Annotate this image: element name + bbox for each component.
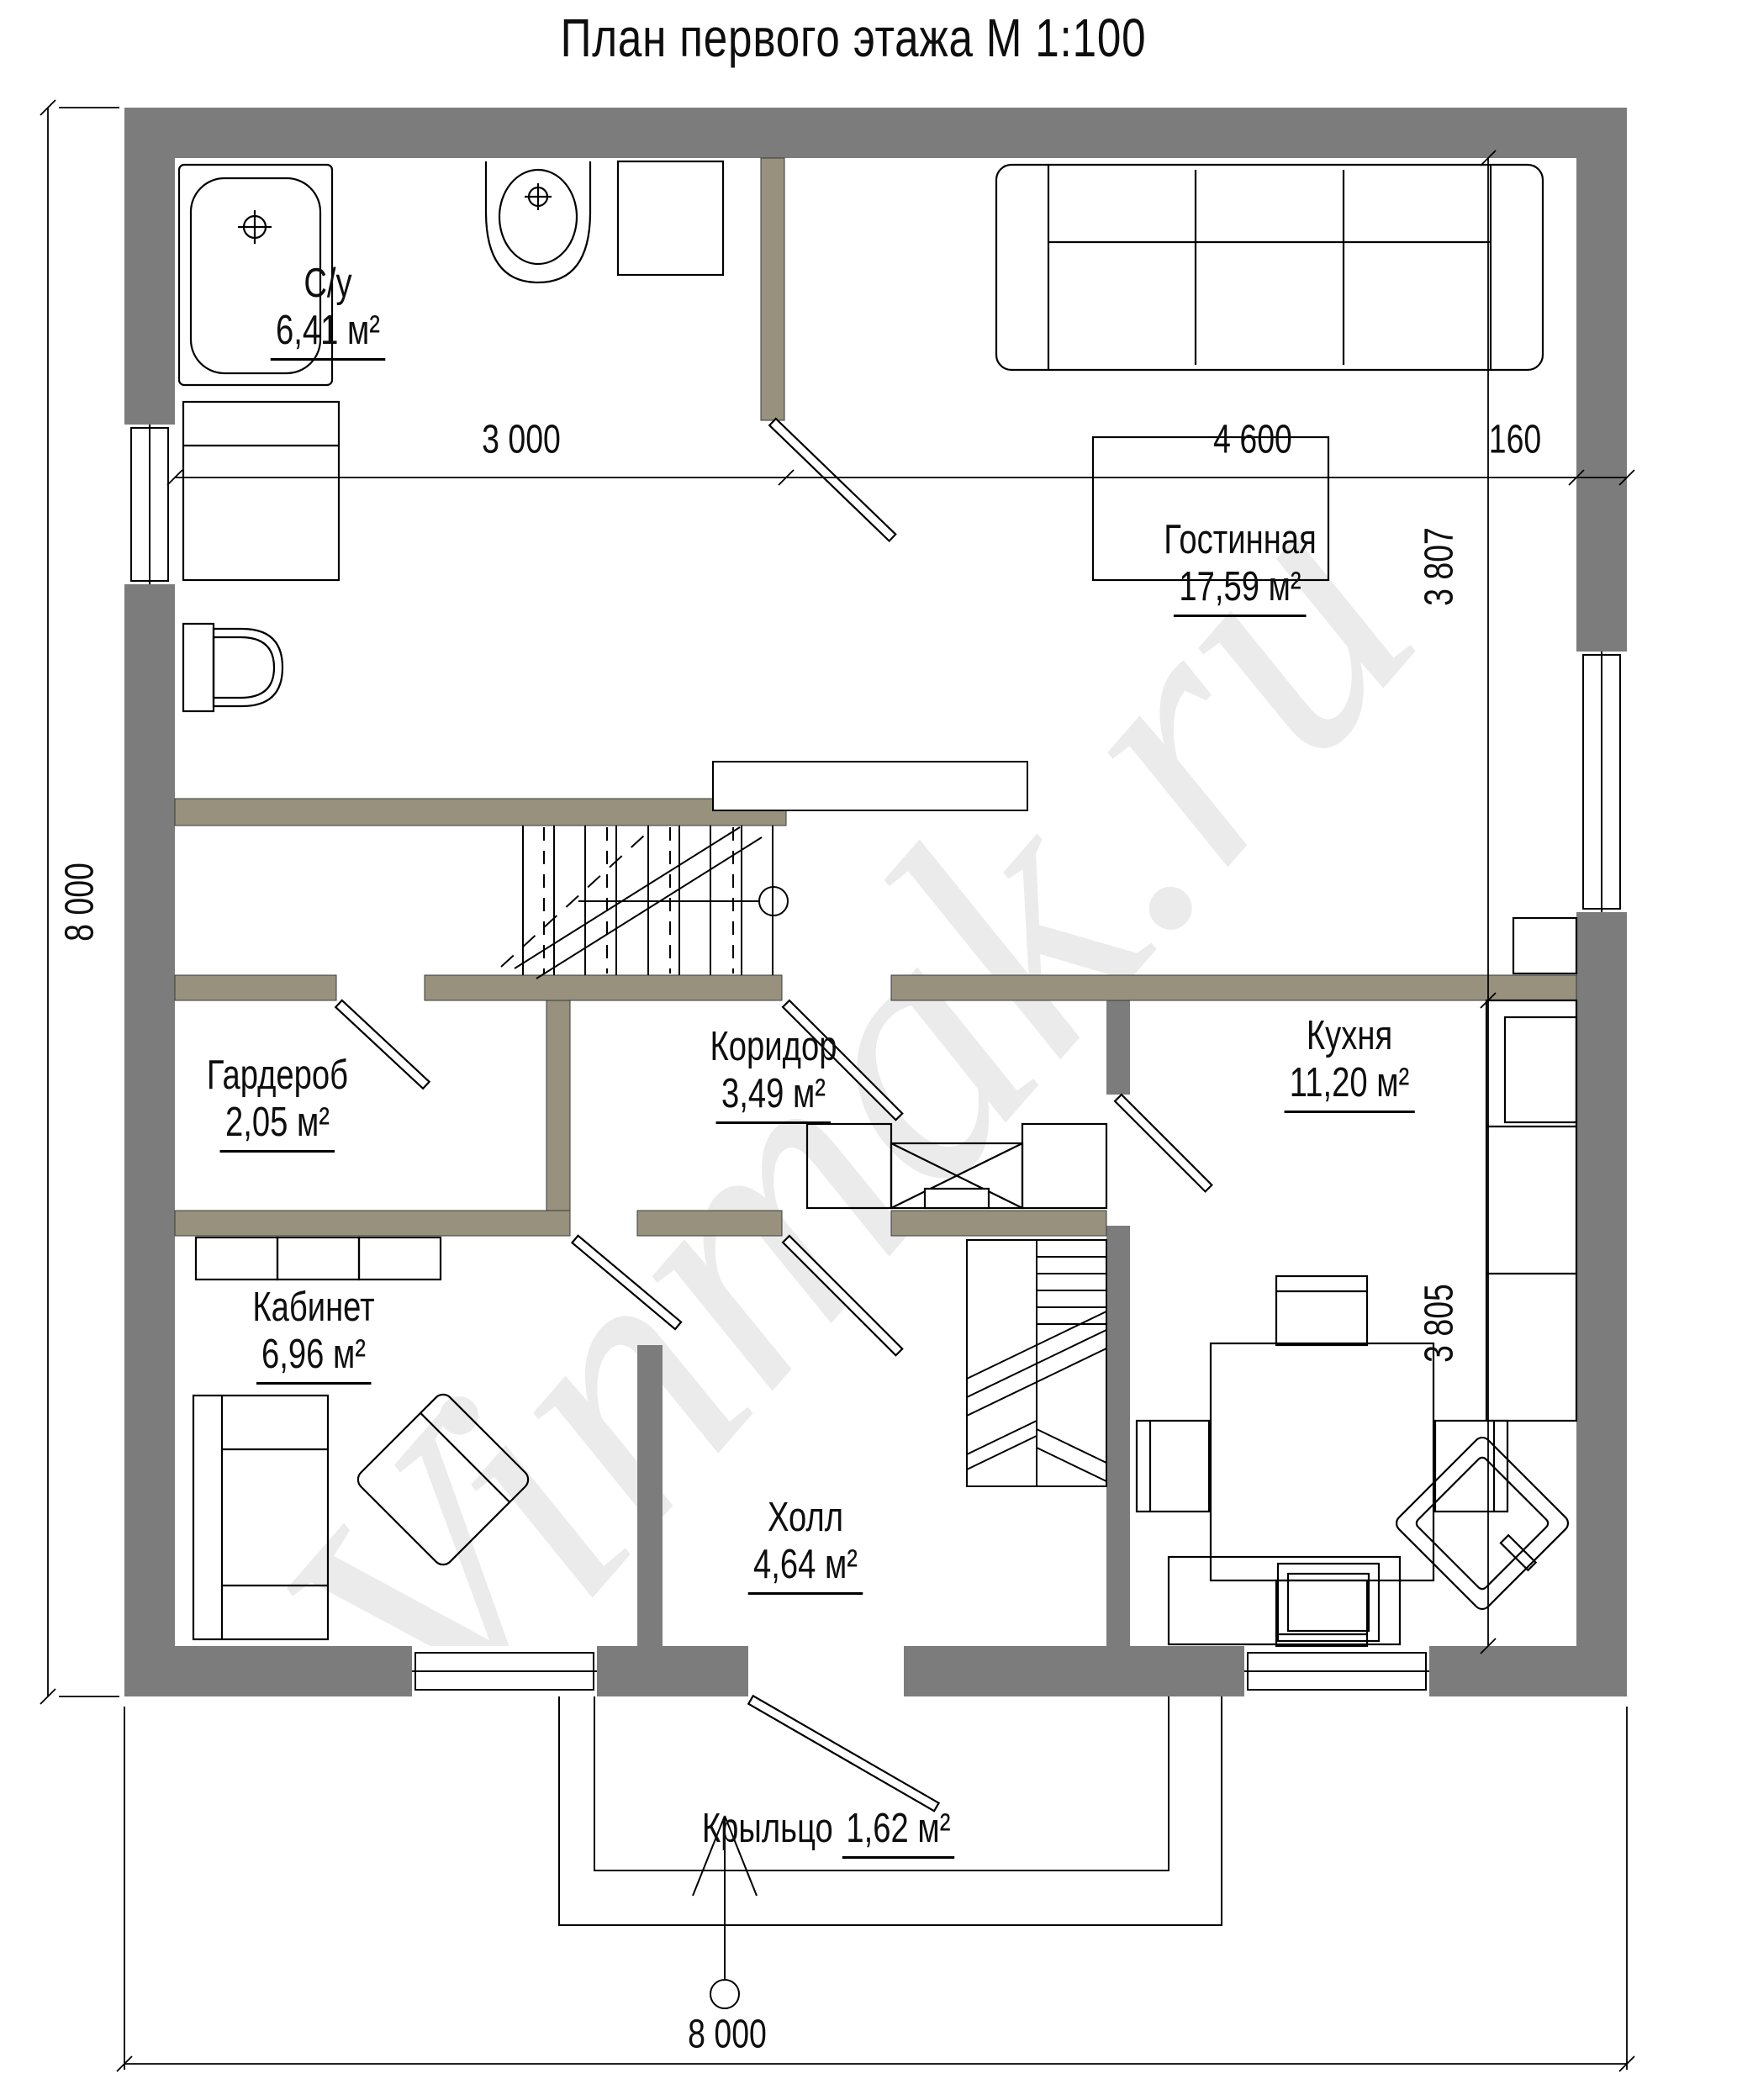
wall-low-1 bbox=[175, 1211, 570, 1236]
room-area: 6,41 м² bbox=[271, 307, 386, 361]
room-label-garderob: Гардероб 2,05 м² bbox=[207, 1053, 348, 1153]
wall-top bbox=[124, 108, 1627, 158]
washing-machine bbox=[183, 402, 339, 580]
room-label-living: Гостинная 17,59 м² bbox=[1164, 517, 1317, 617]
chair-bottom bbox=[1276, 1580, 1367, 1646]
dining-table bbox=[1211, 1343, 1433, 1580]
room-area: 1,62 м² bbox=[842, 1804, 954, 1859]
wall-low-2 bbox=[637, 1211, 782, 1236]
wall-garderob-east bbox=[546, 1000, 570, 1211]
page-title: План первого этажа М 1:100 bbox=[561, 7, 1147, 69]
wall-office-hall bbox=[637, 1345, 663, 1646]
room-name: Холл bbox=[748, 1495, 863, 1541]
room-label-hall: Холл 4,64 м² bbox=[748, 1495, 863, 1595]
stairs bbox=[501, 762, 1027, 979]
dim-bottom-total: 8 000 bbox=[688, 2012, 767, 2058]
living-room-furniture bbox=[807, 165, 1576, 1208]
wall-bottom-3 bbox=[904, 1646, 1244, 1696]
dim-top-160: 160 bbox=[1489, 417, 1541, 463]
room-label-bathroom: С/у 6,41 м² bbox=[271, 261, 386, 361]
window-right bbox=[1576, 652, 1627, 912]
room-name: Коридор bbox=[710, 1024, 837, 1070]
wall-low-3 bbox=[891, 1211, 1106, 1236]
door-leaf-office bbox=[572, 1236, 681, 1329]
floor-plan-page: Vinmak.ru bbox=[0, 0, 1737, 2100]
room-area: 3,49 м² bbox=[716, 1070, 831, 1124]
side-shelf bbox=[1513, 918, 1576, 973]
dim-line-top bbox=[167, 470, 1634, 485]
wall-mid-3 bbox=[891, 975, 1576, 1000]
dim-right-upper: 3 807 bbox=[1417, 527, 1463, 606]
room-name: С/у bbox=[271, 261, 386, 307]
chair-top bbox=[1276, 1276, 1367, 1345]
room-area: 2,05 м² bbox=[220, 1099, 335, 1153]
room-name: Кухня bbox=[1285, 1013, 1415, 1059]
wall-hall-kitchen-upper bbox=[1106, 1000, 1130, 1095]
bathroom-fixtures bbox=[179, 161, 723, 711]
room-area: 11,20 м² bbox=[1285, 1059, 1415, 1113]
room-label-corridor: Коридор 3,49 м² bbox=[710, 1024, 837, 1124]
wall-mid-1 bbox=[175, 975, 336, 1000]
dim-line-bottom bbox=[117, 1707, 1634, 2071]
kitchen-counter-right bbox=[1486, 1000, 1576, 1421]
wall-bath-south bbox=[175, 799, 786, 826]
wall-bottom-4 bbox=[1429, 1646, 1627, 1696]
dim-right-lower: 3 805 bbox=[1417, 1284, 1463, 1363]
office-shelves bbox=[196, 1237, 441, 1280]
wardrobe-hatch bbox=[967, 1240, 1106, 1486]
dim-top-right: 4 600 bbox=[1213, 417, 1292, 463]
room-area: 17,59 м² bbox=[1174, 563, 1307, 617]
wall-left-upper bbox=[124, 108, 175, 425]
stove bbox=[1278, 1564, 1379, 1641]
wall-bath-east bbox=[761, 158, 784, 420]
door-leaf-living bbox=[769, 419, 895, 541]
entrance-opening bbox=[748, 1646, 904, 1696]
dim-left-total: 8 000 bbox=[57, 863, 103, 942]
door-leaf-kitchen bbox=[1115, 1095, 1212, 1191]
armchair bbox=[354, 1390, 532, 1569]
window-bottom-office bbox=[412, 1646, 597, 1696]
dim-top-left: 3 000 bbox=[482, 417, 561, 463]
corner-sink bbox=[1393, 1434, 1573, 1614]
wall-mid-2 bbox=[425, 975, 782, 1000]
toilet bbox=[183, 624, 282, 711]
room-label-office: Кабинет 6,96 м² bbox=[252, 1285, 374, 1385]
wall-bottom-1 bbox=[124, 1646, 412, 1696]
stair-break-line bbox=[515, 827, 740, 968]
door-leaf-hall bbox=[783, 1236, 902, 1355]
room-label-kitchen: Кухня 11,20 м² bbox=[1285, 1013, 1415, 1113]
door-leaf-garderob bbox=[335, 1000, 429, 1089]
bath-cabinet bbox=[618, 161, 723, 275]
wall-left-lower bbox=[124, 584, 175, 1696]
window-left bbox=[124, 425, 175, 584]
wall-right-lower bbox=[1576, 912, 1627, 1696]
room-label-porch: Крыльцо1,62 м² bbox=[702, 1804, 954, 1859]
chair-left bbox=[1137, 1421, 1209, 1512]
floor-plan-drawing bbox=[0, 0, 1737, 2100]
stair-landing bbox=[713, 762, 1027, 810]
room-name: Гостинная bbox=[1164, 517, 1317, 563]
room-name: Гардероб bbox=[207, 1053, 348, 1099]
wall-bottom-2 bbox=[597, 1646, 748, 1696]
wall-hall-kitchen-lower bbox=[1106, 1226, 1130, 1646]
tv-bench bbox=[807, 1124, 1106, 1208]
sink bbox=[486, 161, 590, 282]
room-area: 6,96 м² bbox=[256, 1331, 371, 1385]
office-sofa bbox=[193, 1396, 328, 1639]
kitchen-counter-bottom bbox=[1169, 1557, 1400, 1644]
sofa bbox=[996, 165, 1543, 370]
room-name: Кабинет bbox=[252, 1285, 374, 1331]
wall-right-upper bbox=[1576, 108, 1627, 652]
window-bottom-kitchen bbox=[1244, 1646, 1429, 1696]
room-area: 4,64 м² bbox=[748, 1541, 863, 1595]
door-leaf-entrance bbox=[748, 1696, 938, 1811]
room-name: Крыльцо bbox=[702, 1806, 833, 1851]
